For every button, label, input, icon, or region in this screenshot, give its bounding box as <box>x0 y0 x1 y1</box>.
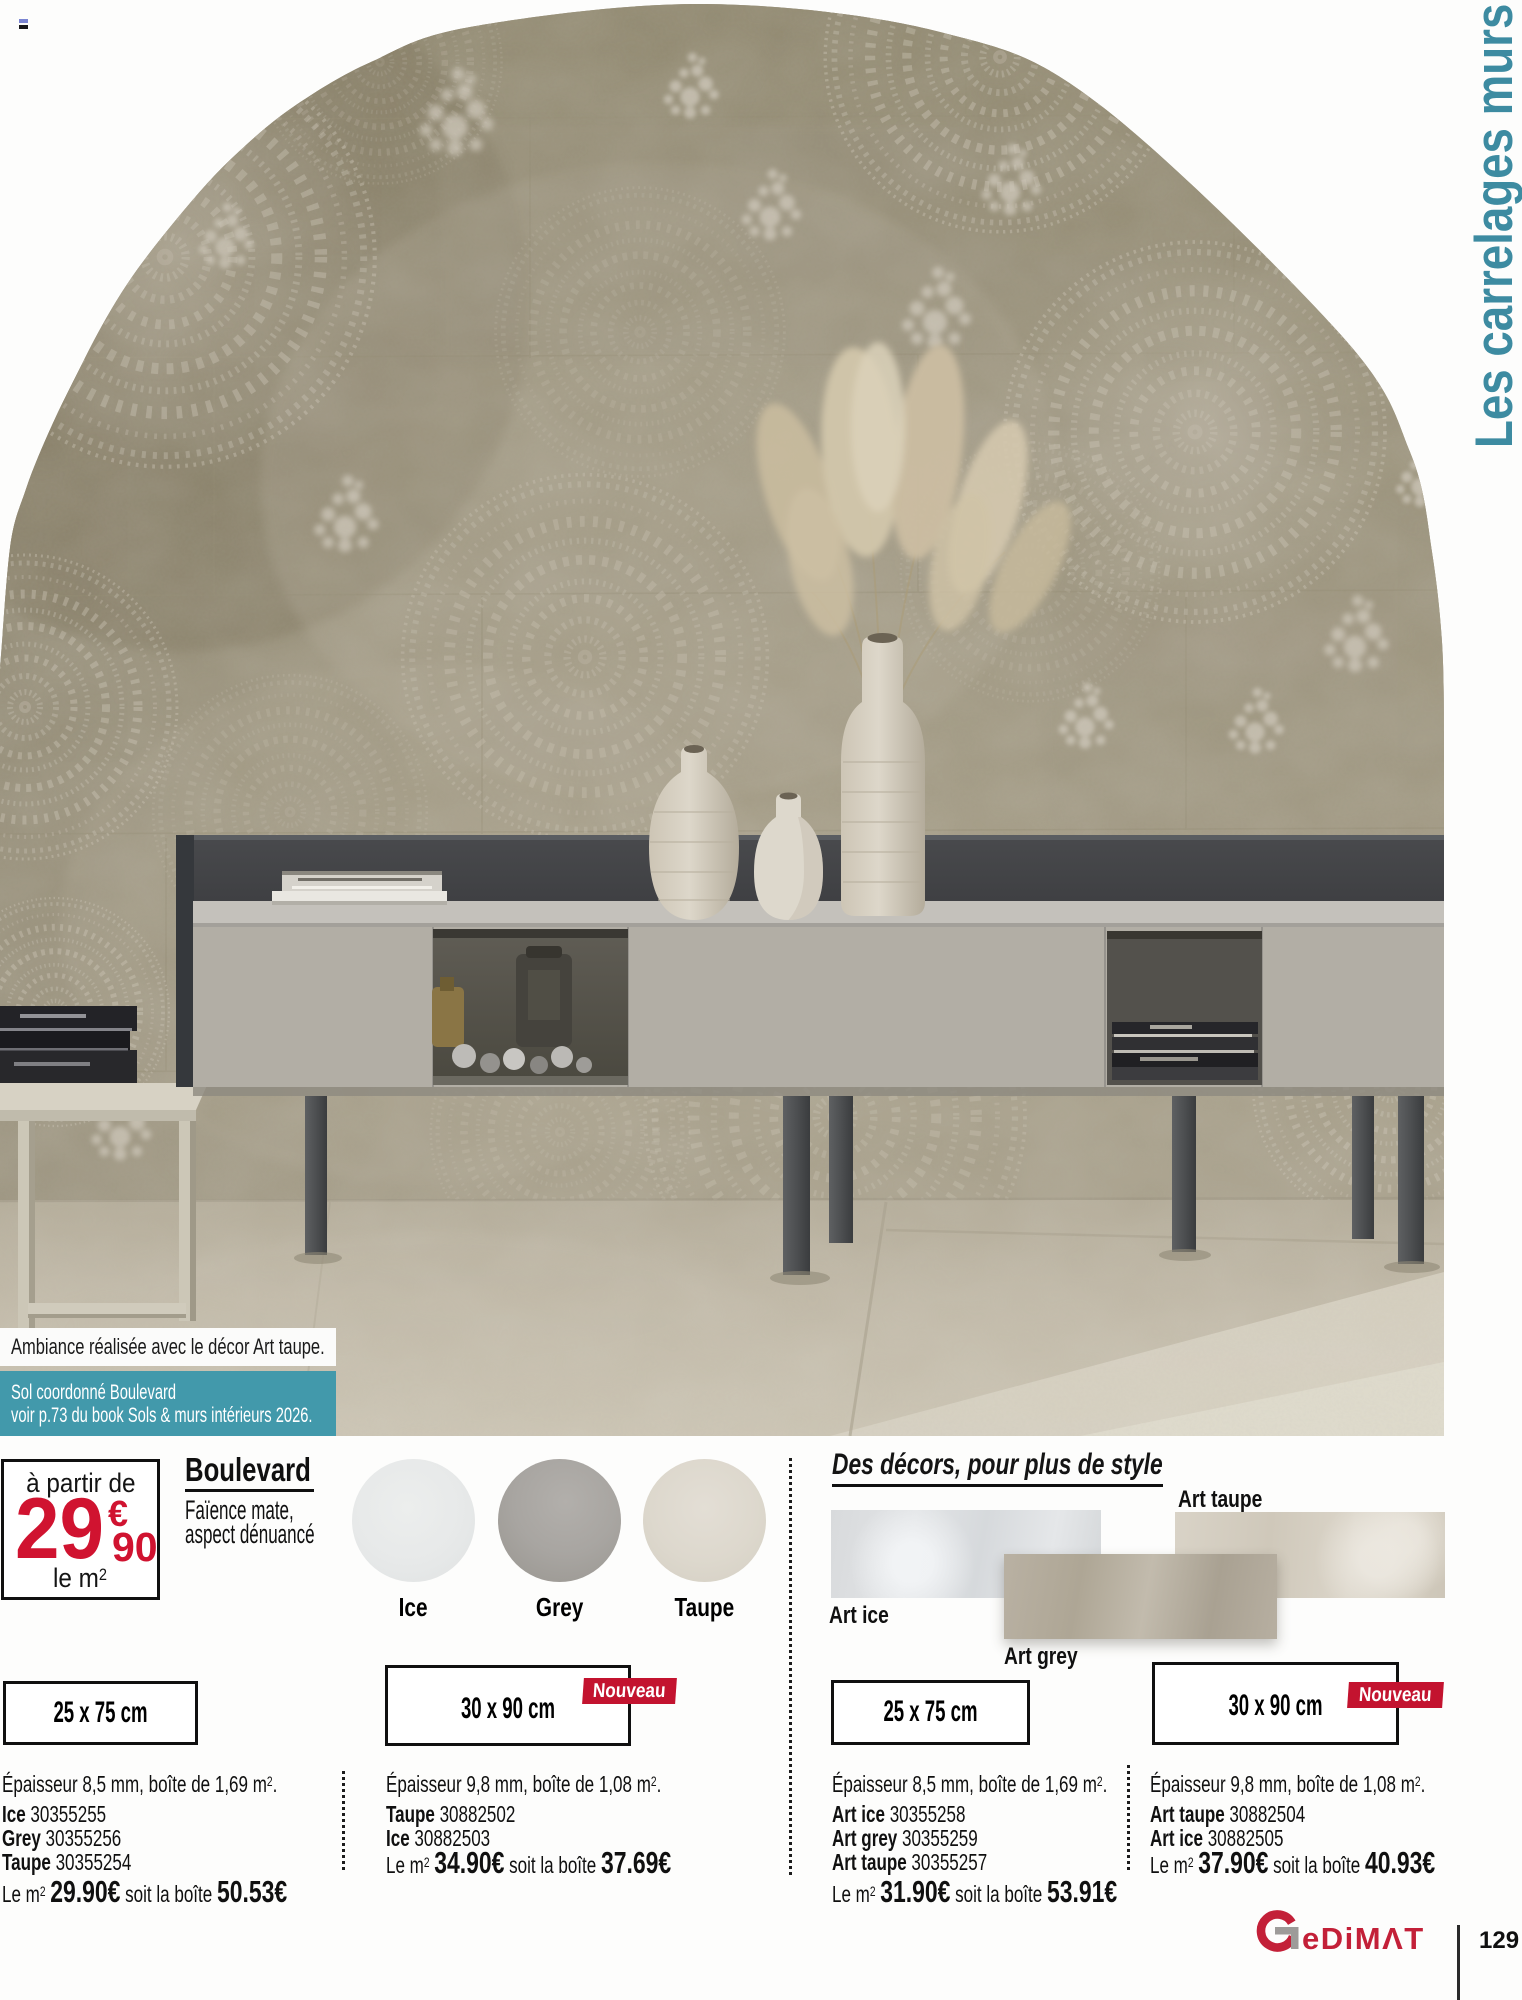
svg-text:Les carrelages murs: Les carrelages murs <box>1465 4 1522 448</box>
svg-text:eDiMΛT: eDiMΛT <box>1302 1921 1425 1956</box>
